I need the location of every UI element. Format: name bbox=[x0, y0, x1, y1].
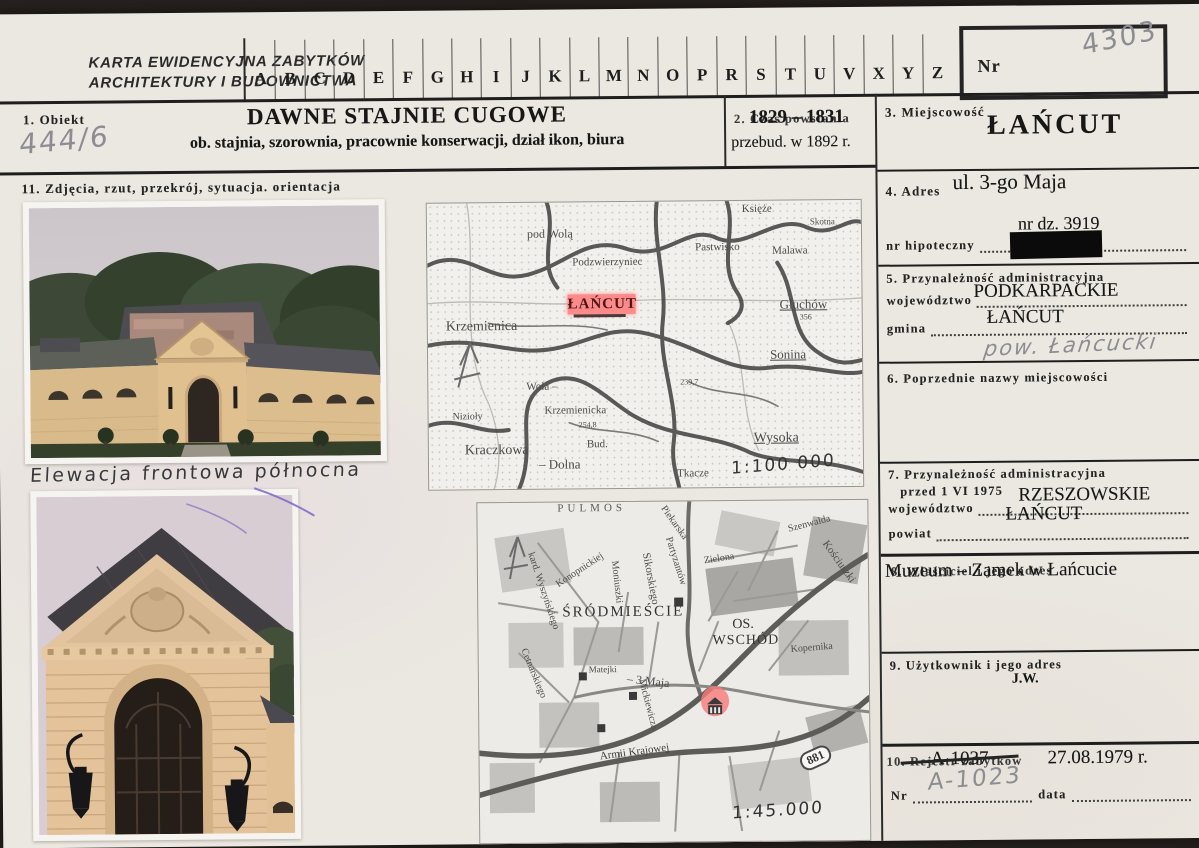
map-city-plan: PULMOS kard. Wyszyńskiego Konopnickiej M… bbox=[476, 499, 871, 844]
register-nr-label: Nr bbox=[891, 789, 908, 804]
map2-district1: ŚRÓDMIEŚCIE bbox=[562, 603, 684, 621]
admin-before-label1: 7. Przynależność administracyjna bbox=[888, 466, 1106, 483]
alpha-letter: K bbox=[539, 37, 569, 97]
alpha-letter: V bbox=[834, 35, 864, 95]
pen-stroke bbox=[240, 482, 320, 523]
divider-5-6 bbox=[879, 359, 1199, 364]
alpha-letter: F bbox=[392, 39, 422, 99]
alpha-letter: P bbox=[687, 36, 717, 96]
map1-town-highlight: ŁAŃCUT bbox=[568, 294, 636, 315]
map1-place: Wysoka bbox=[754, 430, 799, 446]
alpha-letter: Y bbox=[893, 34, 923, 94]
alpha-letter: G bbox=[422, 39, 452, 99]
place-label: 3. Miejscowość bbox=[885, 104, 985, 121]
redaction-box bbox=[1010, 230, 1103, 259]
alphabet-index: A B C D E F G H I J K L M N O P R S T U … bbox=[246, 34, 951, 100]
register-data-label: data bbox=[1038, 787, 1067, 802]
map1-place: pod Wolą bbox=[527, 226, 573, 241]
map1-elevation: 239,7 bbox=[680, 377, 698, 386]
admin-voivodeship-label: województwo bbox=[887, 293, 973, 309]
nr-label: Nr bbox=[977, 56, 1001, 77]
map1-town-underbar bbox=[574, 314, 626, 317]
object-subtitle: ob. stajnia, szorownia, pracownie konser… bbox=[107, 130, 707, 153]
divider-4-5 bbox=[878, 262, 1199, 267]
divider-9-10 bbox=[882, 741, 1199, 747]
map1-place: Księże bbox=[742, 203, 772, 215]
admin-before-district-value: ŁAŃCUT bbox=[1005, 503, 1082, 526]
map1-place: Tkacze bbox=[677, 467, 709, 479]
address-label: 4. Adres bbox=[886, 183, 941, 199]
address-street: ul. 3-go Maja bbox=[952, 169, 1066, 195]
cell-divider bbox=[724, 95, 727, 166]
map2-area-top: PULMOS bbox=[557, 502, 626, 515]
map1-place: Skotna bbox=[810, 216, 835, 226]
place-value: ŁAŃCUT bbox=[987, 109, 1124, 142]
dotted-line bbox=[977, 291, 1187, 308]
alpha-letter: O bbox=[657, 36, 687, 96]
map1-place: Krzemienica bbox=[446, 319, 518, 336]
row1-rule bbox=[0, 165, 876, 175]
divider-6-7 bbox=[880, 459, 1199, 464]
record-card: KARTA EWIDENCYJNA ZABYTKÓW ARCHITEKTURY … bbox=[0, 4, 1199, 848]
alpha-letter: U bbox=[804, 35, 834, 95]
alpha-letter: D bbox=[334, 39, 364, 99]
alpha-letter: S bbox=[745, 36, 775, 96]
photo-pediment-detail-image bbox=[36, 495, 295, 835]
map1-place: Pastwisko bbox=[695, 241, 740, 253]
dotted-line bbox=[937, 524, 1189, 541]
map1-place: Kraczkowa bbox=[465, 443, 529, 460]
admin-before-district-row: powiat bbox=[889, 524, 1189, 542]
alpha-letter: N bbox=[628, 37, 658, 97]
map1-place: Bud. bbox=[587, 438, 608, 450]
map2-district2a: OS. bbox=[732, 617, 754, 633]
map1-place: Nizioły bbox=[453, 411, 483, 422]
alpha-letter: X bbox=[863, 35, 893, 95]
admin-commune-label: gmina bbox=[887, 321, 926, 336]
map1-elevation: 356 bbox=[800, 312, 812, 321]
admin-before-voivodeship-label: województwo bbox=[888, 501, 974, 517]
map2-street: Matejki bbox=[589, 664, 617, 674]
alpha-letter: T bbox=[775, 35, 805, 95]
time-note: przebud. w 1892 r. bbox=[731, 133, 851, 152]
alpha-letter: A bbox=[246, 40, 275, 100]
map1-place: – Dolna bbox=[539, 456, 581, 472]
photo-front-elevation bbox=[23, 199, 387, 464]
time-value: 1829 – 1831 bbox=[749, 106, 844, 129]
divider-8-9 bbox=[882, 649, 1199, 653]
dotted-line bbox=[913, 787, 1032, 803]
map1-place: Podzwierzyniec bbox=[572, 256, 642, 269]
address-mortgage-label: nr hipoteczny bbox=[886, 238, 975, 254]
map-topographic: Księże pod Wolą Skotna Pastwisko Malawa … bbox=[426, 199, 864, 491]
dotted-line bbox=[1072, 786, 1191, 802]
admin-before-district-label: powiat bbox=[889, 526, 932, 541]
alpha-letter: M bbox=[598, 37, 628, 97]
map1-place: Głuchów bbox=[780, 296, 828, 312]
map1-place: Malawa bbox=[772, 244, 808, 256]
former-names-label: 6. Poprzednie nazwy miejscowości bbox=[887, 370, 1108, 387]
photo-pediment-detail bbox=[30, 489, 301, 841]
column-divider bbox=[875, 94, 884, 841]
user-value: j.w. bbox=[1012, 671, 1039, 687]
alpha-letter: I bbox=[481, 38, 511, 98]
owner-value: Muzeum – Zamek w Łańcucie bbox=[885, 559, 1117, 583]
alpha-letter: L bbox=[569, 37, 599, 97]
media-label: 11. Zdjęcia, rzut, przekrój, sytuacja. o… bbox=[22, 178, 342, 197]
alpha-letter: J bbox=[510, 38, 540, 98]
alpha-letter: B bbox=[275, 40, 305, 100]
photo-front-elevation-image bbox=[29, 205, 381, 458]
register-date: 27.08.1979 r. bbox=[1047, 746, 1147, 769]
map1-elevation: 254,8 bbox=[579, 420, 597, 429]
object-title: DAWNE STAJNIE CUGOWE bbox=[117, 100, 697, 131]
admin-before-label2: przed 1 VI 1975 bbox=[900, 484, 1003, 500]
map2-district2b: WSCHÓD bbox=[712, 633, 779, 650]
alpha-letter: Z bbox=[922, 34, 952, 94]
alpha-letter: E bbox=[363, 39, 393, 99]
alpha-letter: C bbox=[304, 40, 334, 100]
register-nr-row: Nr data bbox=[891, 786, 1191, 804]
map1-place: Wola – bbox=[526, 381, 557, 393]
map1-place: Krzemienicka bbox=[544, 404, 606, 417]
map1-place: Sonina bbox=[770, 346, 806, 362]
alpha-letter: R bbox=[716, 36, 746, 96]
alpha-letter: H bbox=[451, 38, 481, 98]
divider-7-8 bbox=[881, 551, 1199, 556]
